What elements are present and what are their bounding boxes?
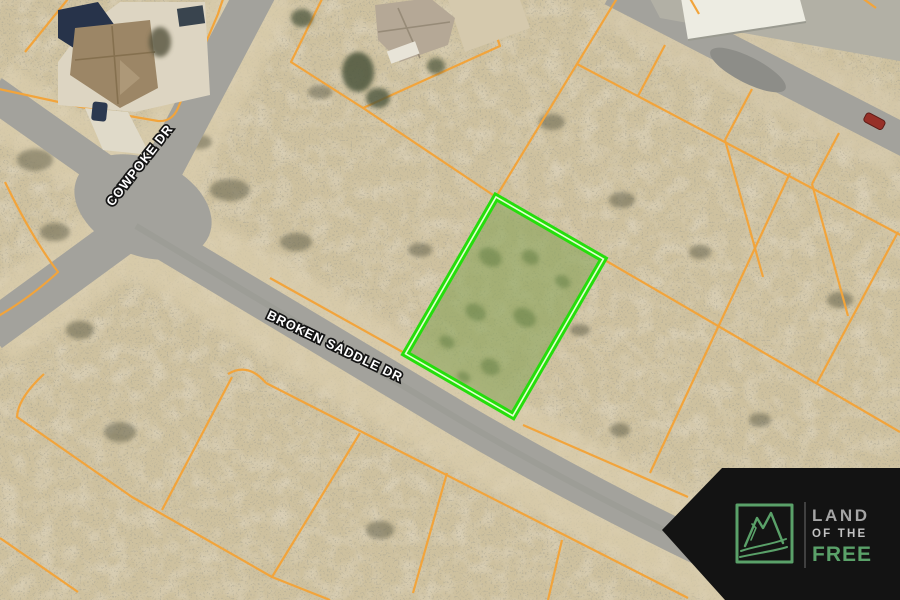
- parked-car-dark: [91, 101, 108, 121]
- tree: [342, 52, 374, 92]
- tree: [366, 88, 390, 108]
- logo-text-of-the: OF THE: [812, 528, 867, 540]
- tree: [291, 9, 313, 27]
- logo-text-land: LAND: [812, 506, 870, 525]
- shed: [177, 5, 205, 26]
- tree: [149, 27, 171, 57]
- listing-map-image: COWPOKE DR BROKEN SADDLE DR LAND OF THE …: [0, 0, 900, 600]
- satellite-map: COWPOKE DR BROKEN SADDLE DR LAND OF THE …: [0, 0, 900, 600]
- logo-text-free: FREE: [812, 543, 872, 566]
- tree: [427, 58, 445, 74]
